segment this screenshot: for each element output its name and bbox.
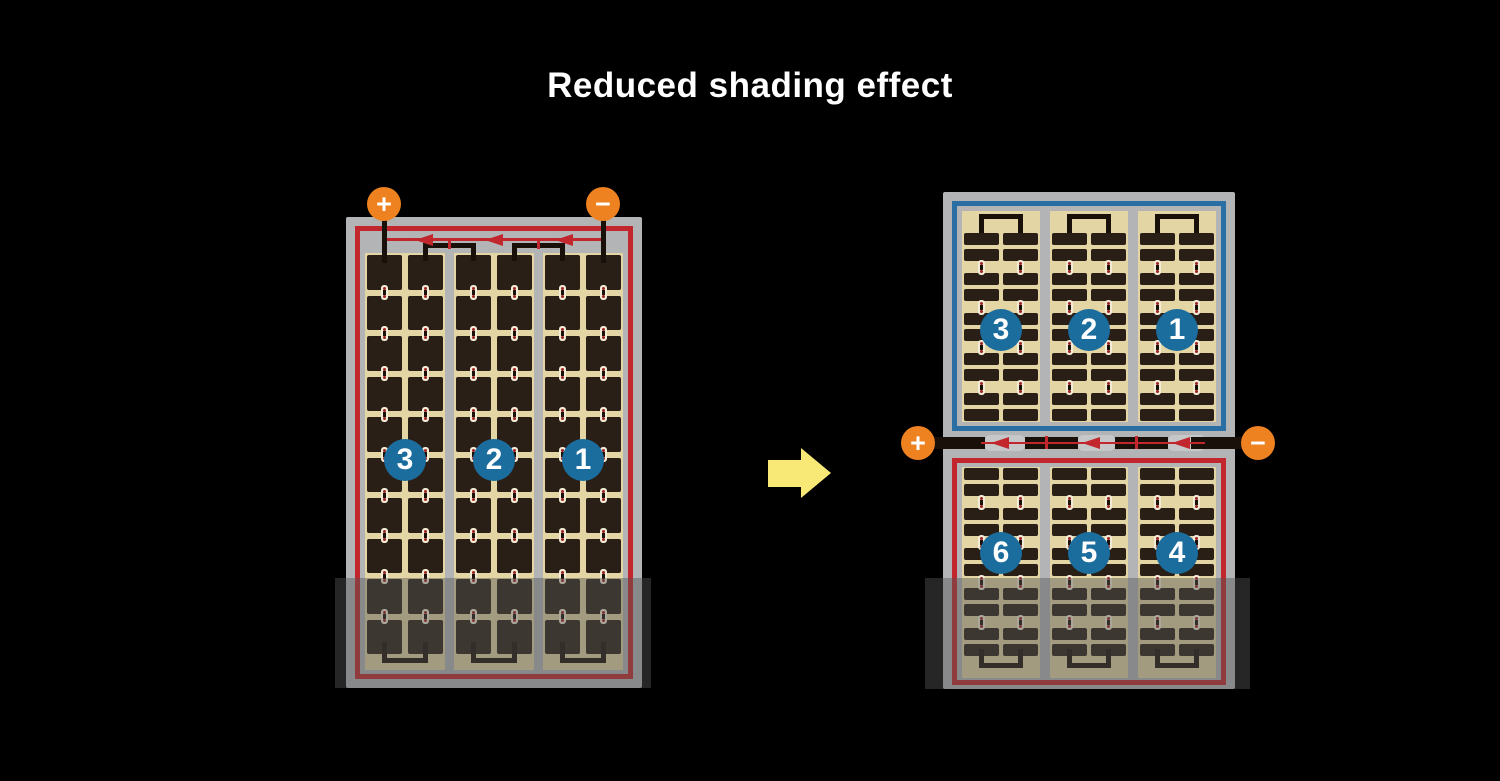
string-number-badge: 4 [1156, 532, 1198, 574]
top-busbar-arm [512, 243, 517, 261]
left-minus-terminal-icon: − [586, 187, 620, 221]
string-number-badge: 5 [1068, 532, 1110, 574]
left-module-frame: 321 [346, 217, 642, 688]
diode-tap [448, 238, 451, 249]
bypass-diode-icon [991, 437, 1009, 449]
bypass-diode-icon [485, 234, 503, 246]
arrow-body [768, 460, 802, 487]
top-busbar-arm [471, 243, 476, 261]
string-number-badge: 2 [473, 439, 515, 481]
left-plus-terminal-icon: + [367, 187, 401, 221]
positive-lead-wire [382, 217, 387, 263]
terminal-label: + [376, 191, 392, 218]
negative-lead-wire [601, 217, 606, 263]
bypass-diode-icon [1082, 437, 1100, 449]
right-minus-terminal-icon: − [1241, 426, 1275, 460]
string-number-badge: 2 [1068, 309, 1110, 351]
diode-tap [1045, 436, 1048, 449]
terminal-label: − [1250, 430, 1266, 457]
bypass-diode-icon [1172, 437, 1190, 449]
arrow-head [801, 448, 831, 498]
diode-tap [1135, 436, 1138, 449]
string-number-badge: 3 [384, 439, 426, 481]
diode-tap [537, 238, 540, 249]
shading-overlay [335, 578, 651, 688]
string-number-badge: 1 [562, 439, 604, 481]
terminal-label: − [595, 191, 611, 218]
string-number-badge: 1 [1156, 309, 1198, 351]
top-busbar-arm [423, 243, 428, 261]
right-module-frame: 362514 [943, 192, 1235, 689]
shading-overlay [925, 578, 1250, 689]
string-number-badge: 3 [980, 309, 1022, 351]
terminal-label: + [910, 430, 926, 457]
page-title: Reduced shading effect [0, 66, 1500, 106]
string-number-badge: 6 [980, 532, 1022, 574]
diagram-canvas: Reduced shading effect + − 321 + − 36251… [0, 0, 1500, 781]
top-busbar-arm [560, 243, 565, 261]
bypass-diode-icon [555, 234, 573, 246]
bypass-diode-icon [415, 234, 433, 246]
right-plus-terminal-icon: + [901, 426, 935, 460]
